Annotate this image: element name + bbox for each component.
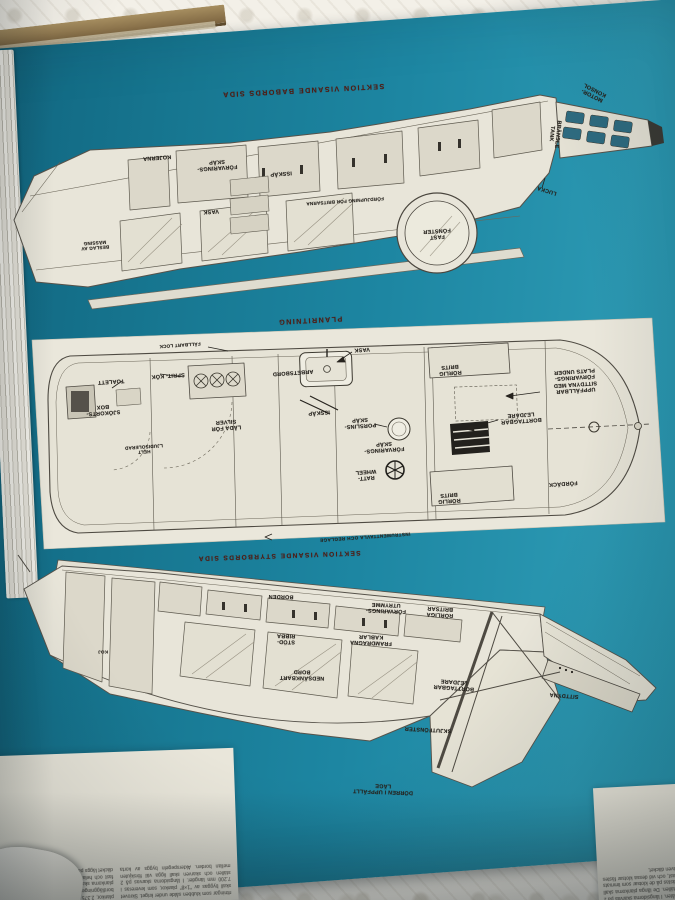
label-koj: KOJ [98, 649, 108, 654]
label-vask-plan: VASK [354, 345, 370, 353]
article-column-right: båten. I långsidorna skarvas på 2 ställe… [593, 784, 675, 900]
label-forvarings-utrymme: FÖRVARINGS- UTRYMME [361, 600, 411, 615]
label-ratt-wheel: RATT- WHEEL [351, 466, 382, 481]
label-uppfallbar-sittdyna: UPPFÄLLBAR SITTDYNA MED FÖRVARINGS- PLAT… [544, 365, 606, 395]
label-borden: BORDEN [268, 593, 293, 600]
label-stod-ribba: STÖD- RIBBA [270, 631, 302, 645]
label-dorren: DÖRREN I UPPFÄLLT LÄGE [350, 780, 416, 795]
label-lada-silver: LÅDA FÖR SILVER [207, 416, 246, 432]
label-nedsankbart-bord: NEDSÄNKBART BORD [273, 667, 331, 681]
label-framdragna-kablar: FRAMDRAGNA KABLAR [347, 632, 395, 647]
label-vask-top: VASK [203, 207, 219, 215]
label-rorlig-brits-under: RÖRLIG BRITS [430, 489, 469, 505]
magazine-photo: SEKTION VISANDE BABORDS SIDA PLANRITNING… [0, 0, 675, 900]
label-rorlig-brits-over: RÖRLIG BRITS [431, 361, 470, 377]
label-rorliga-britsar: RÖRLIGA BRITSAR [418, 603, 463, 618]
label-fast-fonster: FAST FÖNSTER [418, 225, 457, 241]
